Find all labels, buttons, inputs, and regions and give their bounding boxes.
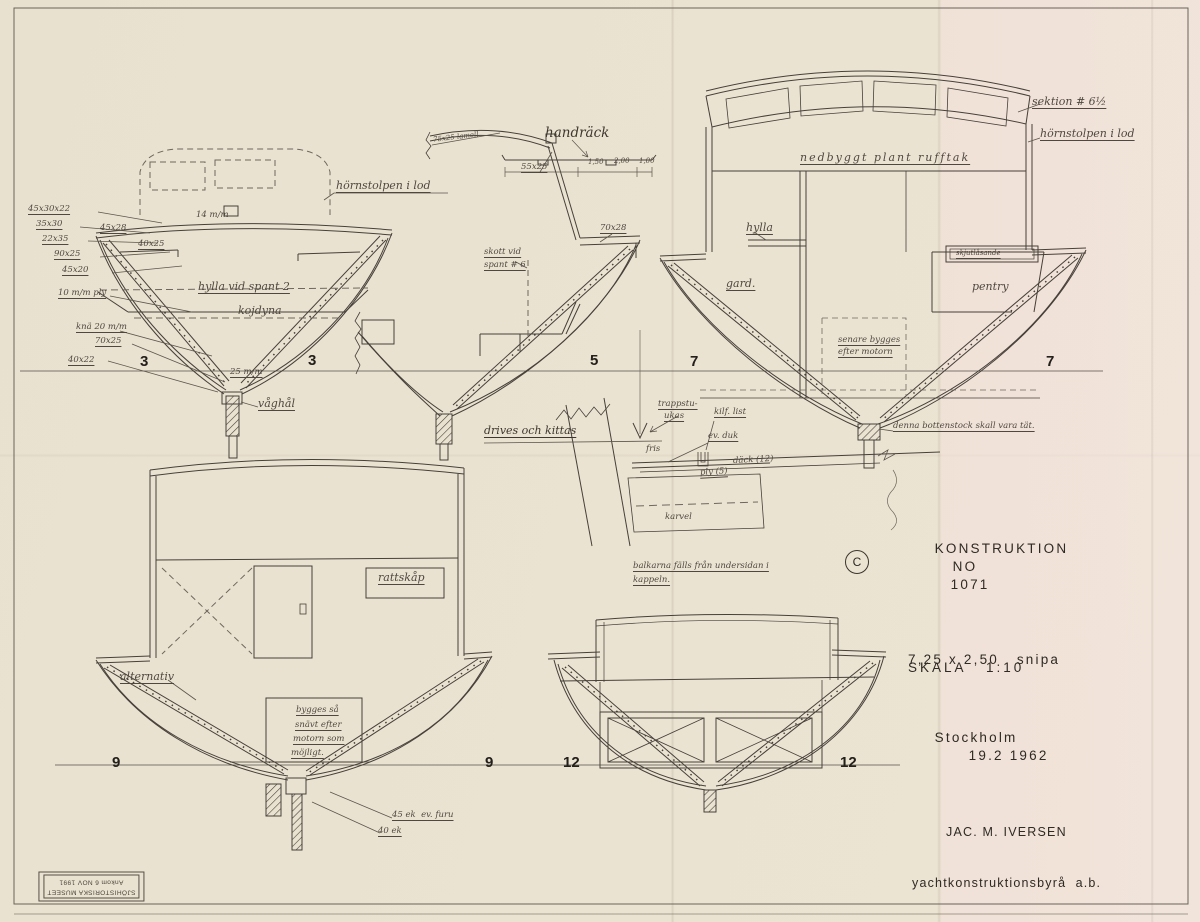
dim-label: 25 m/m (230, 368, 263, 378)
note-label: ply (5) (700, 467, 728, 478)
note-label: sektion # 6½ (1032, 96, 1106, 109)
note-label: möjligt. (291, 749, 324, 759)
section-marker-12: 12 (840, 754, 857, 771)
revision-mark: C (853, 555, 862, 569)
note-label: rattskåp (378, 572, 425, 585)
note-label: skott vid (484, 248, 521, 258)
dimension-value: 1,50 (588, 158, 604, 166)
note-label: hylla vid spant 2 (198, 281, 290, 294)
no-label: NO (953, 559, 978, 574)
section-marker-5: 5 (590, 352, 598, 369)
material-label: knä 20 m/m (76, 323, 127, 333)
section-marker-7: 7 (690, 353, 698, 370)
note-label: kilf. list (714, 408, 746, 418)
dimension-value: 1,00 (639, 157, 655, 165)
section-marker-9: 9 (485, 754, 493, 771)
note-label: efter motorn (838, 348, 893, 358)
note-label: gard. (726, 278, 755, 291)
section-marker-3: 3 (308, 352, 316, 369)
note-label: bygges så (296, 706, 339, 716)
note-label: trappstu- (658, 400, 698, 410)
note-label: ukas (664, 412, 684, 422)
note-label: hylla (746, 222, 773, 235)
dim-label: 70x25 (95, 337, 121, 347)
note-label: hörnstolpen i lod (336, 180, 431, 193)
firm-type: yachtkonstruktionsbyrå a.b. (912, 876, 1104, 890)
note-label: kappeln. (633, 576, 670, 586)
note-label: denna bottenstock skall vara tät. (893, 422, 1035, 432)
note-label: drives och kittas (484, 425, 576, 438)
note-label: senare bygges (838, 336, 900, 346)
note-label: motorn som (293, 735, 345, 745)
city: Stockholm (935, 730, 1018, 745)
drawing-sheet: 45x30x22 35x30 22x35 90x25 45x20 10 m/m … (0, 0, 1200, 922)
dim-label: 35x30 (36, 220, 62, 230)
project-number: 1071 (951, 577, 990, 592)
dim-label: 55x25 (521, 163, 547, 173)
section-9 (96, 459, 492, 850)
note-label: balkarna fälls från undersidan i (633, 562, 769, 572)
note-label: skjutlåsande (956, 249, 1001, 257)
dim-label: 70x28 (600, 224, 626, 234)
dim-label: 14 m/m (196, 211, 229, 221)
note-label: hörnstolpen i lod (1040, 128, 1135, 141)
note-label: pentry (972, 281, 1009, 294)
museum-stamp: SJÖHISTORISKA MUSEET Ankom 6 NOV 1991 (38, 872, 144, 902)
dimension-value: 2,00 (614, 157, 630, 165)
section-marker-9: 9 (112, 754, 120, 771)
firm-name: JAC. M. IVERSEN (946, 825, 1104, 839)
stamp-line2: Ankom 6 NOV 1991 (47, 877, 135, 887)
material-label: 10 m/m ply (58, 289, 106, 299)
scale-label: SKALA 1:10 (908, 660, 1024, 675)
dim-label: 45x28 (100, 224, 126, 234)
note-label: spant # 6 (484, 261, 526, 271)
section-marker-7: 7 (1046, 353, 1054, 370)
note-label: karvel (665, 513, 692, 523)
material-label: 45 ek ev. furu (392, 811, 454, 821)
dim-label: 40x25 (138, 240, 164, 250)
dim-label: 22x35 (42, 235, 68, 245)
section-marker-12: 12 (563, 754, 580, 771)
note-label: ev. duk (708, 432, 738, 442)
note-label: nedbyggt plant rufftak (800, 152, 970, 165)
note-label: snävt efter (295, 721, 342, 731)
revision-mark-circle: C (845, 550, 869, 574)
note-label: kojdyna (238, 305, 282, 318)
dim-label: 40x22 (68, 356, 94, 366)
title-row: KONSTRUKTION NO 1071 (908, 522, 1104, 612)
note-label: handräck (545, 126, 609, 142)
dim-label: 45x30x22 (28, 205, 70, 215)
note-label: alternativ (120, 671, 174, 684)
date: 19.2 1962 (969, 748, 1049, 763)
material-label: 40 ek (378, 827, 402, 837)
note-label: fris (646, 445, 660, 455)
stamp-line1: SJÖHISTORISKA MUSEET (47, 887, 135, 897)
section-12 (548, 614, 886, 812)
dim-label: 45x20 (62, 266, 88, 276)
note-label: våghål (258, 398, 295, 411)
dim-label: 90x25 (54, 250, 80, 260)
title-block: KONSTRUKTION NO 1071 7,25 x 2,50 snipa S… (908, 486, 1104, 922)
project-label: KONSTRUKTION (935, 541, 1069, 556)
place-date-row: Stockholm 19.2 1962 (908, 711, 1104, 783)
section-marker-3: 3 (140, 353, 148, 370)
